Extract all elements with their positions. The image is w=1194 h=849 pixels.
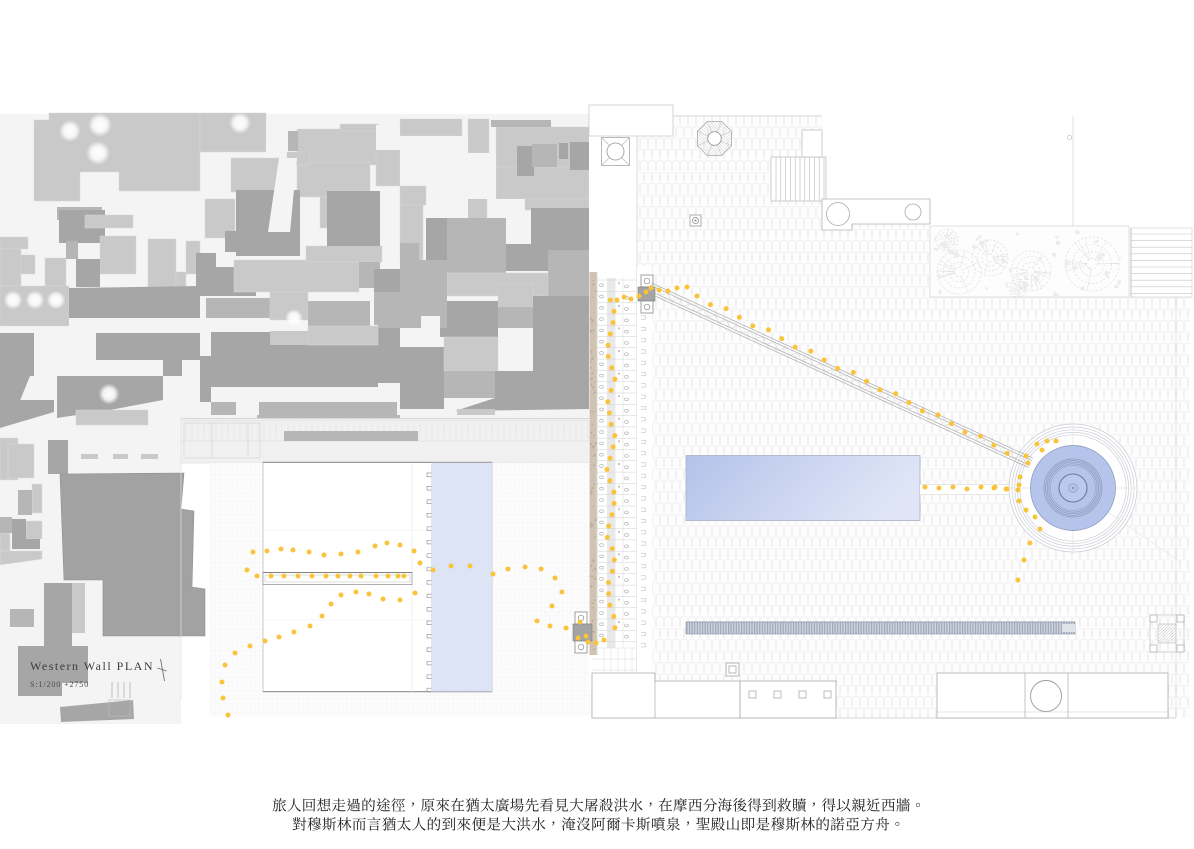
svg-text:S:1/200 +2750: S:1/200 +2750 xyxy=(30,680,89,689)
svg-text:Western Wall PLAN: Western Wall PLAN xyxy=(30,659,154,673)
